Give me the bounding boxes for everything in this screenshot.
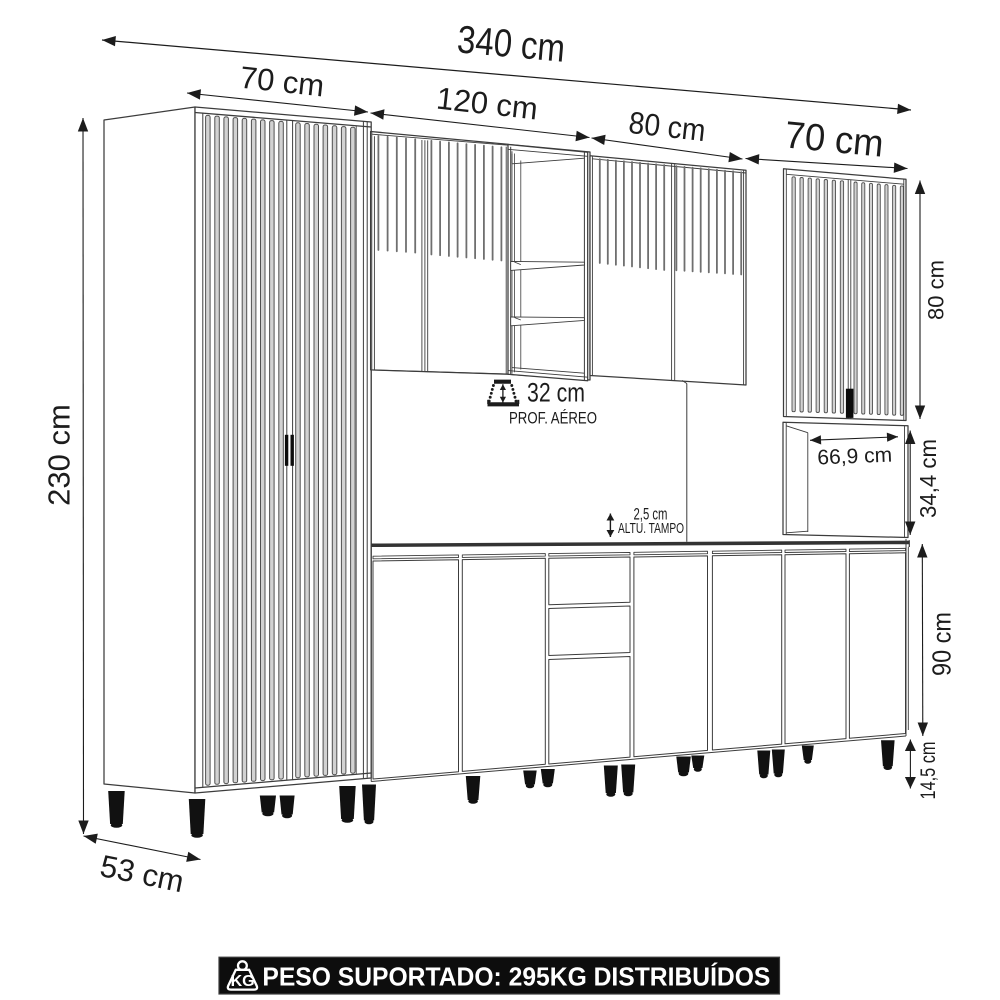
svg-text:PESO SUPORTADO: 295KG DISTRIBU: PESO SUPORTADO: 295KG DISTRIBUÍDOS [262,962,770,992]
svg-text:34,4 cm: 34,4 cm [915,439,941,518]
svg-text:KG: KG [231,973,255,990]
svg-text:ALTU. TAMPO: ALTU. TAMPO [618,521,684,537]
svg-text:230 cm: 230 cm [42,404,77,506]
svg-text:66,9 cm: 66,9 cm [817,444,893,470]
svg-text:32 cm: 32 cm [527,378,585,408]
svg-text:80 cm: 80 cm [924,260,949,320]
svg-text:PROF. AÉREO: PROF. AÉREO [509,409,597,428]
svg-text:90 cm: 90 cm [927,612,957,676]
svg-text:14,5 cm: 14,5 cm [917,742,940,800]
